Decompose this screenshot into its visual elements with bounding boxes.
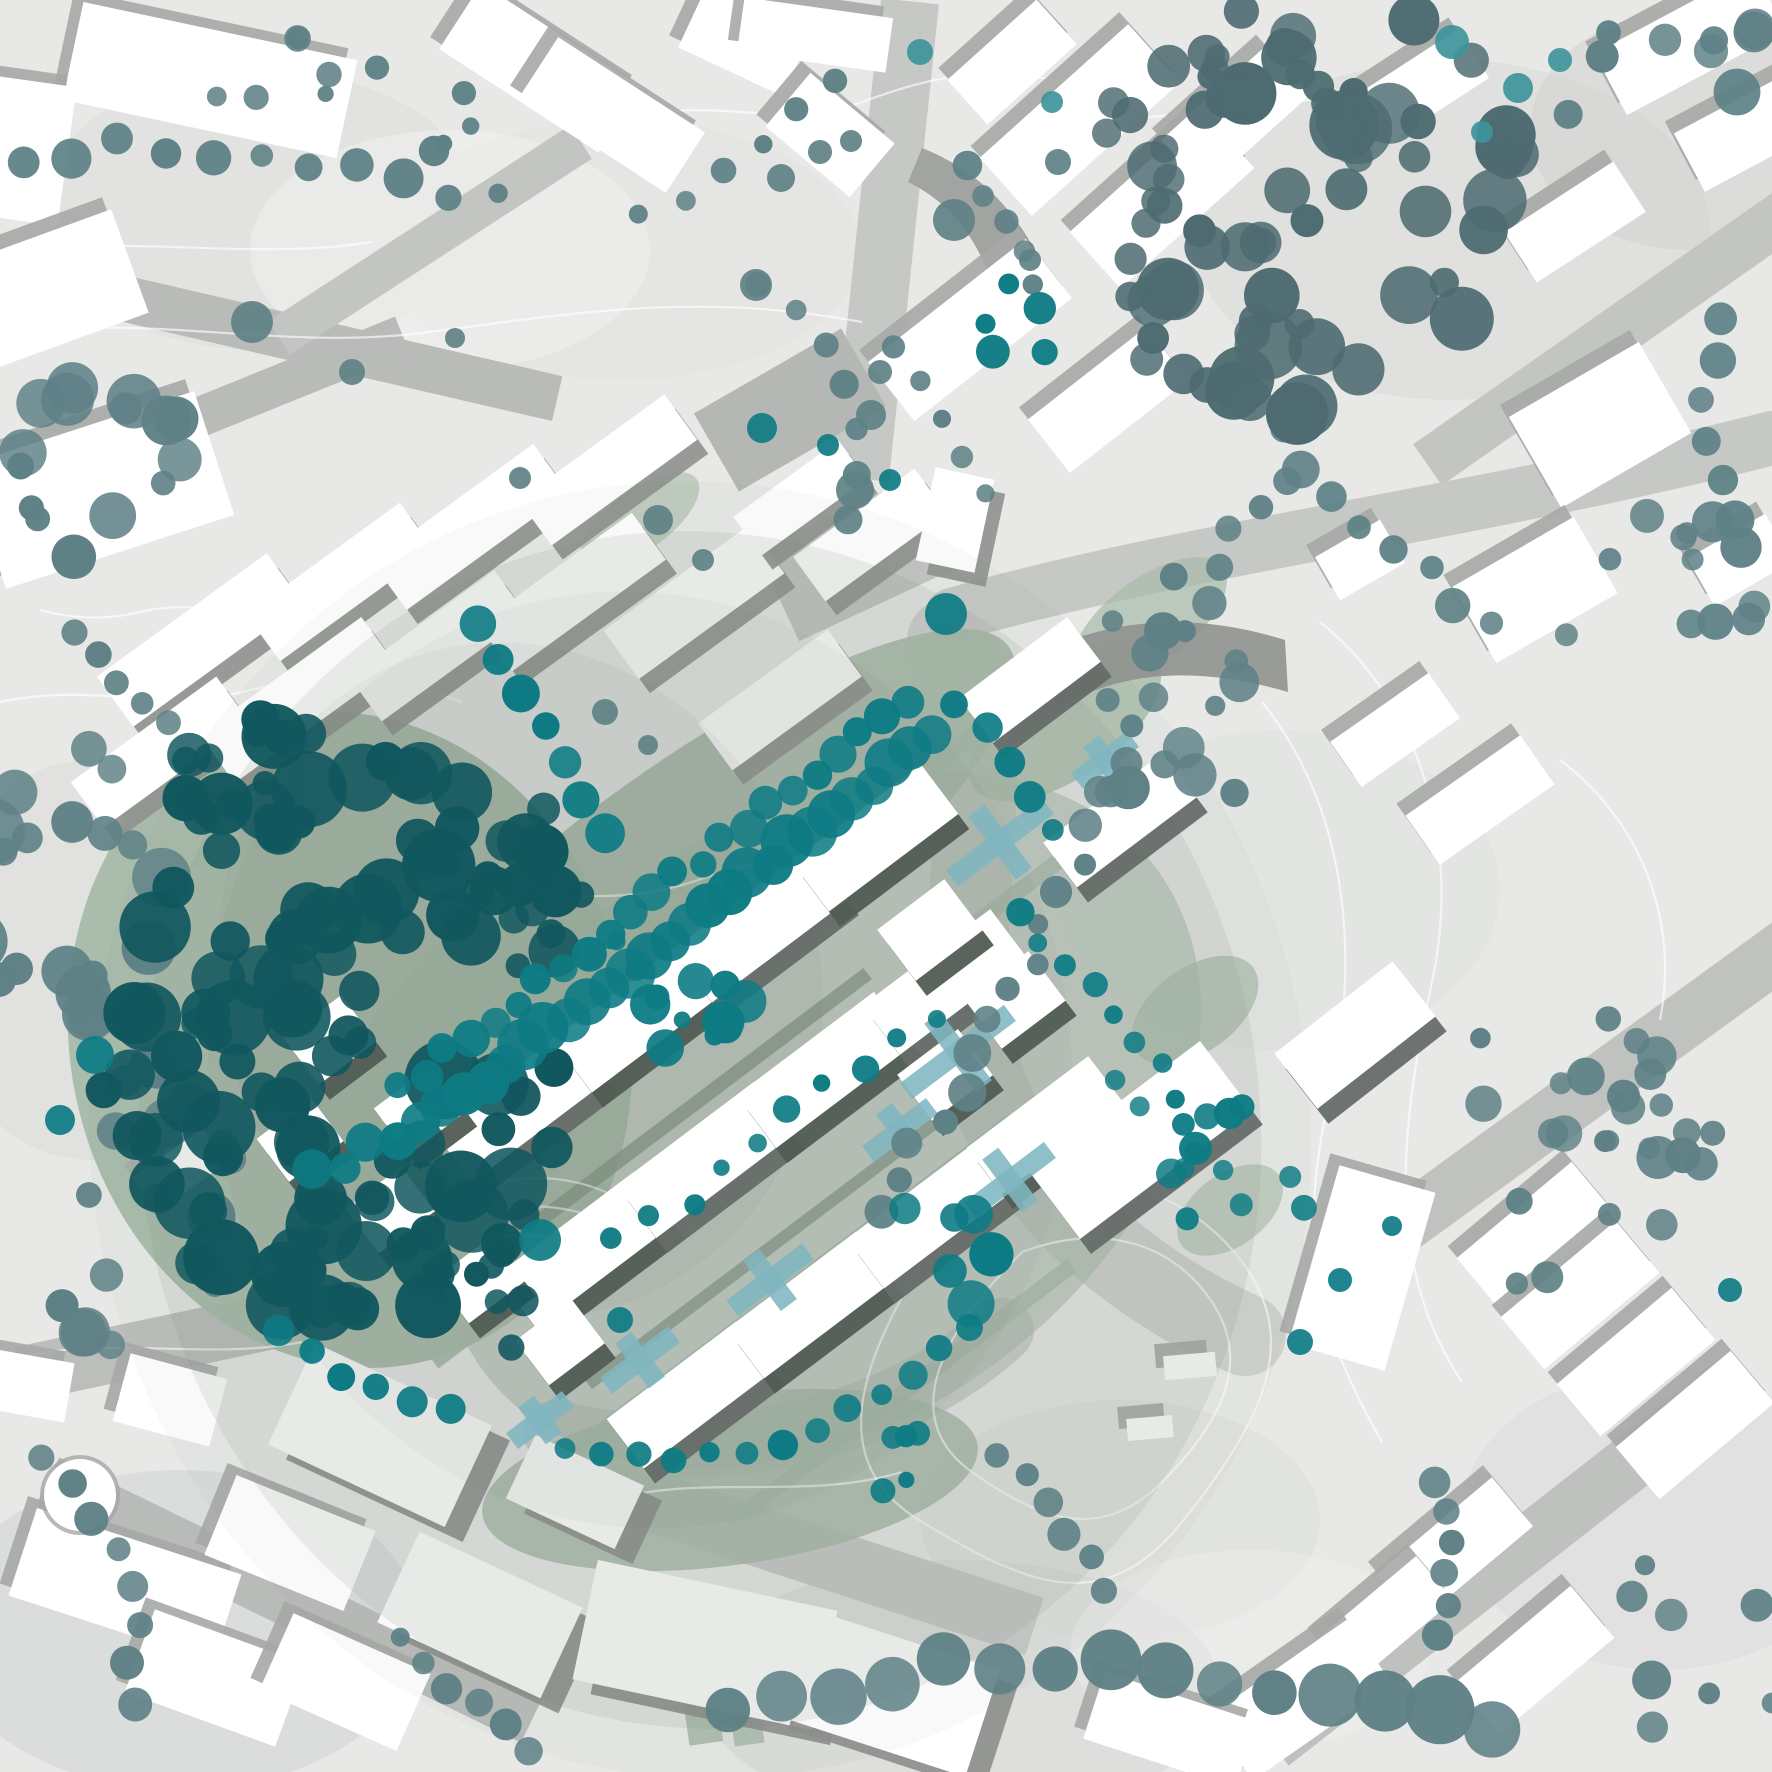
tree (661, 1448, 687, 1474)
tree (103, 982, 165, 1044)
tree (412, 1652, 435, 1675)
tree (183, 1091, 256, 1164)
tree (568, 882, 594, 908)
tree (77, 961, 107, 991)
tree (1555, 623, 1578, 646)
tree (1184, 1142, 1204, 1162)
tree (972, 712, 1002, 742)
tree (395, 1273, 461, 1339)
tree (879, 469, 901, 491)
tree (562, 781, 599, 818)
tree (7, 453, 34, 480)
tree (1688, 387, 1714, 413)
site-plan-map (0, 0, 1772, 1772)
tree (154, 397, 199, 442)
tree (608, 932, 626, 950)
tree (76, 1036, 114, 1074)
masterplan-stage (0, 0, 1772, 1772)
tree (1400, 186, 1452, 238)
tree (1684, 1147, 1718, 1181)
tree (196, 140, 231, 175)
tree (25, 506, 50, 531)
tree (1042, 819, 1064, 841)
tree (1624, 1028, 1650, 1054)
tree (107, 1537, 131, 1561)
tree (284, 25, 311, 52)
tree (1270, 13, 1316, 59)
tree (1102, 610, 1123, 631)
tree (1279, 1166, 1301, 1188)
tree (625, 959, 647, 981)
tree (898, 1472, 914, 1488)
tree (1616, 1581, 1647, 1612)
tree (1692, 427, 1721, 456)
tree (998, 274, 1019, 295)
tree (506, 992, 532, 1018)
tree (678, 963, 714, 999)
tree (1032, 339, 1058, 365)
tree (381, 910, 425, 954)
tree (189, 1192, 227, 1230)
tree (1027, 954, 1049, 976)
tree (974, 1643, 1025, 1694)
tree (250, 144, 273, 167)
tree (749, 786, 783, 820)
tree (972, 185, 994, 207)
tree (646, 1029, 684, 1067)
tree (117, 1571, 148, 1602)
tree (889, 1193, 920, 1224)
tree (747, 413, 777, 443)
tree (928, 1010, 946, 1028)
tree (1163, 354, 1204, 395)
tree (1714, 69, 1761, 116)
tree (397, 1386, 428, 1417)
tree (28, 1445, 54, 1471)
tree (629, 205, 648, 224)
tree (1430, 1559, 1458, 1587)
tree (1105, 1070, 1125, 1090)
tree (435, 185, 461, 211)
tree (1638, 1137, 1660, 1159)
tree (705, 1026, 725, 1046)
tree (1718, 1278, 1742, 1302)
tree (830, 370, 859, 399)
tree (549, 746, 581, 778)
tree (917, 1632, 970, 1685)
tree (385, 747, 438, 800)
tree (836, 471, 874, 509)
tree (384, 1072, 410, 1098)
tree (1124, 1032, 1146, 1054)
tree (340, 148, 374, 182)
tree (1632, 1661, 1671, 1700)
tree (1016, 1463, 1039, 1486)
tree (490, 1709, 522, 1741)
tree (1024, 292, 1056, 324)
tree (254, 944, 324, 1014)
tree (470, 866, 519, 915)
tree (1287, 1329, 1313, 1355)
tree (107, 374, 162, 429)
tree (363, 1374, 389, 1400)
tree (152, 867, 194, 909)
tree (1111, 747, 1143, 779)
tree (817, 434, 839, 456)
tree (445, 328, 465, 348)
tree (255, 807, 303, 855)
tree (391, 1628, 410, 1647)
tree (813, 1074, 830, 1091)
tree (1637, 1712, 1668, 1743)
tree (1006, 898, 1034, 926)
tree (1220, 77, 1257, 114)
tree (513, 824, 569, 880)
tree (1430, 287, 1494, 351)
tree (384, 158, 424, 198)
tree (692, 549, 714, 571)
tree (1546, 1115, 1582, 1151)
tree (1033, 1646, 1078, 1691)
tree (1550, 1072, 1572, 1094)
tree (768, 1430, 798, 1460)
tree (1420, 556, 1444, 580)
tree (1040, 876, 1072, 908)
tree (1436, 1593, 1461, 1618)
tree (1288, 318, 1345, 375)
tree (264, 719, 300, 755)
tree (969, 1232, 1013, 1276)
tree (953, 151, 983, 181)
tree (1230, 1193, 1253, 1216)
tree (464, 1262, 489, 1287)
tree (674, 1012, 691, 1029)
tree (498, 1334, 524, 1360)
tree (419, 136, 449, 166)
tree (891, 1128, 922, 1159)
tree (131, 692, 154, 715)
tree (1069, 809, 1102, 842)
tree (823, 69, 847, 93)
tree (1014, 781, 1046, 813)
tree (736, 1442, 759, 1465)
tree (690, 851, 716, 877)
tree (1594, 1130, 1616, 1152)
tree (1104, 1005, 1123, 1024)
tree (1079, 1545, 1104, 1570)
tree (101, 123, 133, 155)
tree (1435, 588, 1470, 623)
tree (940, 691, 968, 719)
tree (810, 1669, 866, 1725)
tree (394, 1162, 446, 1214)
tree (808, 140, 832, 164)
tree (913, 715, 952, 754)
tree (1464, 1701, 1520, 1757)
tree (452, 81, 476, 105)
tree (994, 209, 1018, 233)
tree (1206, 554, 1233, 581)
tree (756, 1671, 807, 1722)
tree (784, 97, 808, 121)
tree (163, 775, 209, 821)
tree (1433, 1498, 1459, 1524)
tree (346, 1123, 385, 1162)
tree (1197, 1661, 1242, 1706)
tree (1156, 1159, 1186, 1189)
tree (1435, 25, 1469, 59)
tree (1282, 451, 1320, 489)
tree (767, 164, 795, 192)
tree (1205, 696, 1225, 716)
tree (1700, 342, 1736, 378)
tree (98, 755, 127, 784)
tree (118, 1688, 152, 1722)
tree (1650, 1093, 1673, 1116)
tree (110, 1646, 144, 1680)
tree (172, 747, 199, 774)
tree (1379, 535, 1407, 563)
tree (1166, 1090, 1185, 1109)
tree (1186, 91, 1224, 129)
tree (1471, 121, 1493, 143)
tree (207, 87, 227, 107)
tree (1463, 169, 1526, 232)
tree (1649, 24, 1681, 56)
tree (1634, 1058, 1666, 1090)
tree (336, 1221, 396, 1281)
tree (203, 832, 240, 869)
tree (754, 135, 772, 153)
tree (85, 641, 112, 668)
tree (1228, 378, 1272, 422)
tree (1503, 73, 1533, 103)
tree (1567, 1058, 1605, 1096)
tree (1138, 1642, 1194, 1698)
tree (1023, 274, 1043, 294)
tree (1439, 1530, 1465, 1556)
tree (61, 619, 87, 645)
tree (245, 722, 270, 747)
tree (405, 836, 449, 880)
tree (1034, 1488, 1064, 1518)
tree (1264, 168, 1310, 214)
tree (740, 269, 772, 301)
tree (907, 39, 933, 65)
tree (1153, 1053, 1173, 1073)
tree (482, 1112, 516, 1146)
tree (814, 333, 839, 358)
tree (778, 776, 808, 806)
tree (51, 801, 93, 843)
tree (899, 1361, 928, 1390)
tree (411, 1060, 444, 1093)
tree (1019, 249, 1041, 271)
tree (1150, 750, 1178, 778)
tree (1506, 1188, 1533, 1215)
tree (427, 1033, 457, 1063)
tree (336, 1287, 379, 1330)
tree (882, 335, 905, 358)
tree (1239, 304, 1272, 337)
tree (1147, 45, 1190, 88)
tree (509, 467, 531, 489)
tree (1084, 776, 1116, 808)
tree (948, 1073, 986, 1111)
tree (1028, 934, 1047, 953)
tree (74, 1502, 108, 1536)
tree (514, 1737, 542, 1765)
tree (684, 1194, 705, 1215)
tree (1732, 603, 1765, 636)
tree (592, 699, 618, 725)
tree (1083, 972, 1108, 997)
tree (1249, 495, 1273, 519)
tree (312, 1036, 353, 1077)
tree (805, 1418, 830, 1443)
tree (379, 1122, 417, 1160)
tree (1115, 282, 1145, 312)
tree (118, 830, 147, 859)
tree (339, 971, 379, 1011)
tree (51, 139, 91, 179)
tree (607, 1307, 633, 1333)
tree (1419, 1467, 1451, 1499)
tree (1130, 1096, 1150, 1116)
tree (773, 1095, 800, 1122)
tree (1131, 634, 1168, 671)
tree (833, 1394, 861, 1422)
tree (299, 1338, 325, 1364)
tree (699, 1442, 719, 1462)
tree (1213, 1160, 1233, 1180)
tree (1139, 683, 1169, 713)
tree (1586, 40, 1619, 73)
tree (1096, 688, 1120, 712)
tree (1698, 1683, 1720, 1705)
tree (295, 153, 323, 181)
tree (292, 1149, 332, 1189)
tree (58, 1469, 87, 1498)
tree (704, 823, 733, 852)
tree (1291, 1195, 1317, 1221)
tree (1252, 1670, 1297, 1715)
tree (1655, 1599, 1687, 1631)
tree (976, 335, 1010, 369)
tree (1700, 1121, 1725, 1146)
tree (1, 953, 33, 985)
tree (197, 1016, 232, 1051)
tree (1219, 662, 1259, 702)
tree (1130, 343, 1163, 376)
tree (956, 1314, 983, 1341)
tree (976, 314, 996, 334)
tree (483, 644, 514, 675)
tree (1325, 168, 1367, 210)
tree (1286, 60, 1316, 90)
tree (465, 1689, 493, 1717)
tree (1092, 119, 1121, 148)
tree (887, 1028, 906, 1047)
tree (316, 62, 341, 87)
tree (519, 1219, 561, 1261)
tree (127, 1612, 153, 1638)
tree (895, 1425, 917, 1447)
tree (954, 1195, 993, 1234)
tree (638, 1205, 659, 1226)
tree (1677, 610, 1706, 639)
tree (1054, 954, 1076, 976)
tree (1422, 1620, 1453, 1651)
tree (1548, 48, 1572, 72)
tree (432, 1251, 460, 1279)
tree (868, 360, 892, 384)
tree (231, 301, 273, 343)
tree (1153, 164, 1184, 195)
tree (954, 1034, 992, 1072)
tree (600, 1227, 622, 1249)
tree (1682, 549, 1704, 571)
tree (292, 1253, 327, 1288)
tree (555, 1438, 576, 1459)
tree (1380, 266, 1438, 324)
tree (59, 1309, 107, 1357)
tree (47, 362, 99, 414)
tree (76, 1182, 102, 1208)
tree (871, 1384, 892, 1405)
tree (834, 505, 863, 534)
tree (1220, 779, 1248, 807)
tree (1041, 91, 1063, 113)
tree (1646, 1209, 1678, 1241)
tree (1160, 563, 1188, 591)
tree (856, 400, 886, 430)
tree (1480, 612, 1503, 635)
tree (786, 300, 807, 321)
tree (976, 484, 994, 502)
tree (1192, 586, 1226, 620)
tree (1115, 243, 1147, 275)
tree (1194, 1103, 1220, 1129)
tree (926, 1335, 952, 1361)
tree (1359, 83, 1420, 144)
tree (645, 985, 670, 1010)
tree (638, 735, 658, 755)
tree (431, 1673, 462, 1704)
tree (748, 1134, 767, 1153)
tree (840, 130, 862, 152)
tree (1215, 516, 1241, 542)
tree (713, 1160, 729, 1176)
tree (1673, 1118, 1701, 1146)
tree (1611, 1090, 1645, 1124)
tree (1399, 141, 1431, 173)
tree (1183, 214, 1216, 247)
tree (151, 138, 181, 168)
tree (327, 1363, 355, 1391)
tree (1704, 302, 1737, 335)
tree (974, 1006, 1001, 1033)
tree (151, 471, 176, 496)
tree (887, 1167, 912, 1192)
tree (1470, 1028, 1491, 1049)
tree (263, 1315, 294, 1346)
tree (984, 1443, 1009, 1468)
tree (52, 535, 97, 580)
tree (436, 1394, 466, 1424)
tree (318, 86, 334, 102)
tree (1091, 1578, 1117, 1604)
